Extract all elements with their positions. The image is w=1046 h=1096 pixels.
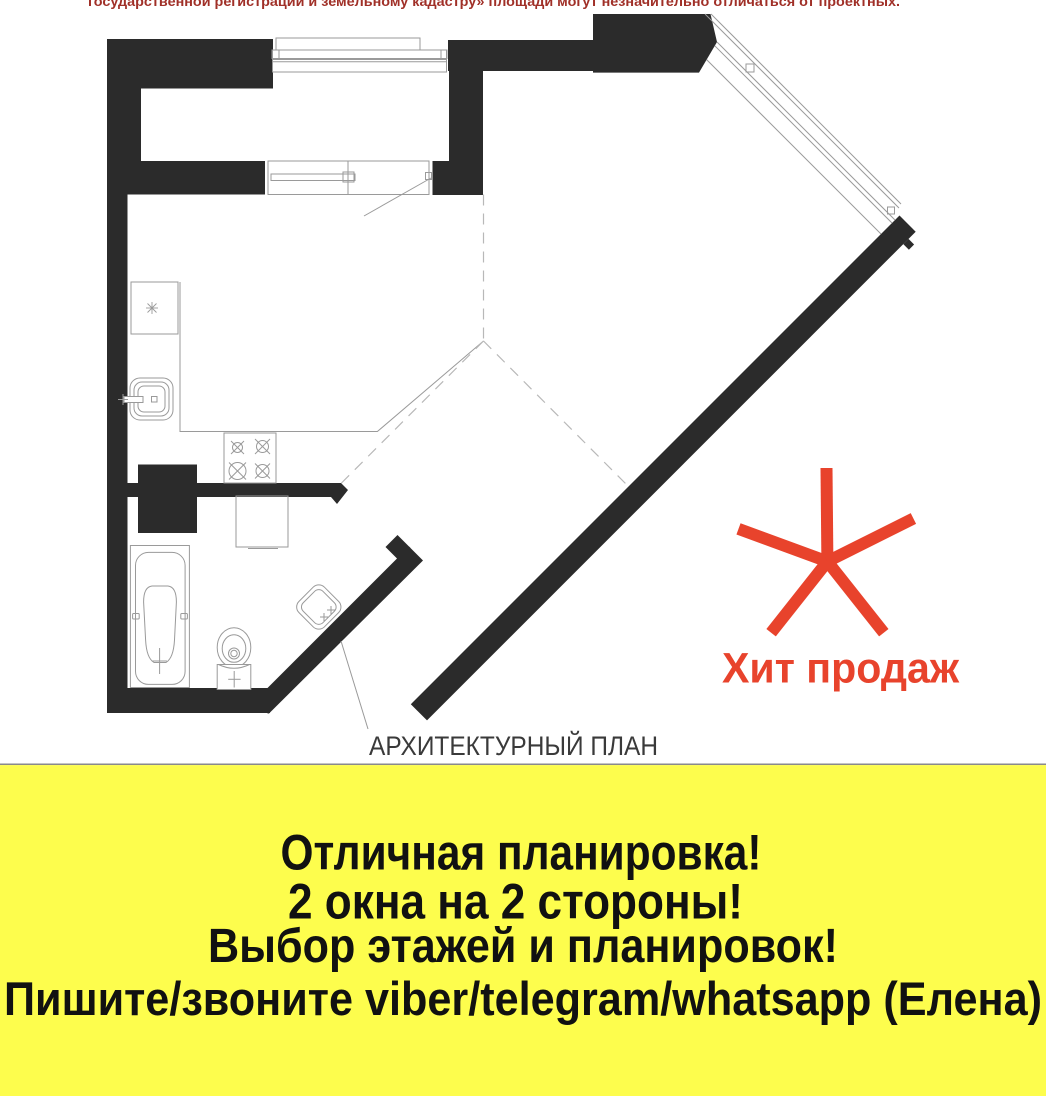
svg-text:Отличная планировка!: Отличная планировка!: [281, 825, 762, 881]
svg-text:Выбор этажей и планировок!: Выбор этажей и планировок!: [208, 920, 838, 973]
svg-text:Хит продаж: Хит продаж: [722, 645, 959, 693]
svg-text:Пишите/звоните viber/telegram/: Пишите/звоните viber/telegram/whatsapp (…: [4, 972, 1042, 1025]
svg-text:АРХИТЕКТУРНЫЙ ПЛАН: АРХИТЕКТУРНЫЙ ПЛАН: [369, 730, 658, 761]
svg-text:государственной регистрации и: государственной регистрации и земельному…: [88, 0, 900, 9]
